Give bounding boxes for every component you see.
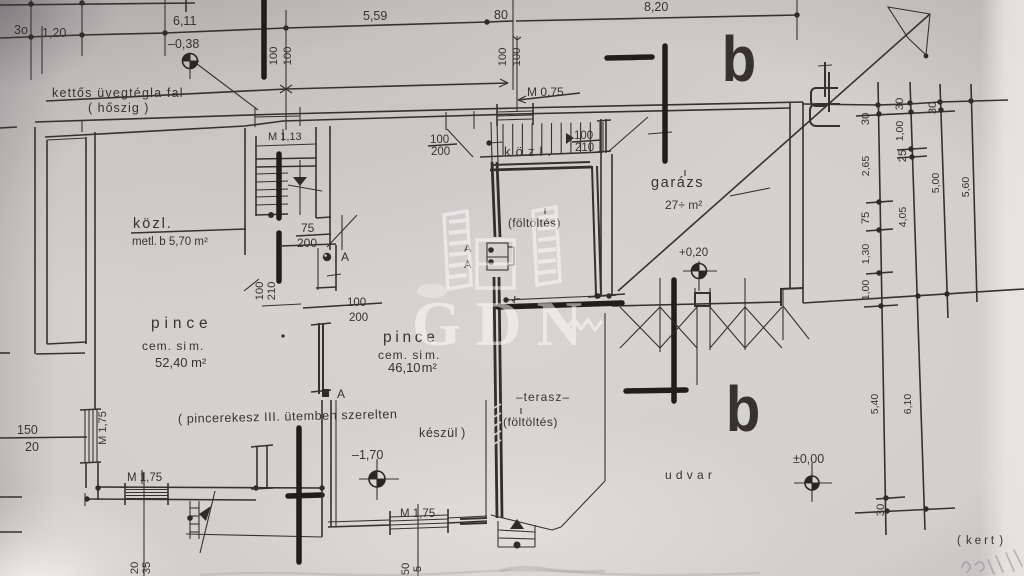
svg-text:b: b	[722, 23, 756, 95]
svg-text:75: 75	[860, 212, 872, 225]
svg-text:80: 80	[494, 8, 508, 22]
svg-text:5,40: 5,40	[869, 394, 881, 415]
svg-text:3o: 3o	[14, 23, 28, 37]
svg-text:200: 200	[431, 146, 450, 158]
svg-text:2,65: 2,65	[860, 156, 872, 177]
svg-text:A: A	[337, 387, 345, 401]
svg-text:200: 200	[349, 312, 368, 324]
svg-text:M 1,13: M 1,13	[268, 131, 302, 143]
svg-text:–0,38: –0,38	[168, 37, 199, 51]
svg-text:100: 100	[268, 47, 280, 66]
svg-text:k ö z l .: k ö z l .	[504, 144, 553, 159]
svg-text:1,00: 1,00	[894, 121, 906, 142]
svg-text:20: 20	[129, 562, 141, 575]
svg-text:M 1,75: M 1,75	[97, 411, 109, 445]
svg-text:46,10 m²: 46,10 m²	[388, 360, 437, 375]
svg-text:u d v a r: u d v a r	[665, 468, 713, 482]
svg-text:1,00: 1,00	[860, 280, 872, 301]
svg-text:( hőszig ): ( hőszig )	[88, 101, 149, 115]
svg-text:±0,00: ±0,00	[793, 452, 824, 466]
svg-text:b: b	[726, 373, 760, 445]
svg-text:50: 50	[400, 563, 412, 576]
svg-text:készül ): készül )	[419, 426, 466, 440]
svg-text:( k e r t ): ( k e r t )	[957, 535, 1004, 547]
svg-text:8,20: 8,20	[644, 0, 668, 14]
svg-text:150: 150	[17, 423, 38, 437]
svg-text:1,30: 1,30	[860, 244, 872, 265]
svg-text:5,00: 5,00	[930, 173, 942, 194]
svg-text:5,60: 5,60	[960, 177, 972, 198]
svg-text:garázs: garázs	[651, 175, 704, 191]
svg-text:100: 100	[497, 48, 509, 67]
svg-text:75: 75	[301, 221, 315, 235]
svg-text:25: 25	[897, 150, 909, 163]
svg-text:(föltöltés): (föltöltés)	[503, 415, 558, 429]
svg-text:4,05: 4,05	[897, 207, 909, 228]
svg-text:+0,20: +0,20	[679, 247, 708, 259]
svg-text:M 1,75: M 1,75	[127, 472, 162, 484]
svg-text:A: A	[341, 250, 349, 264]
svg-text:27÷ m²: 27÷ m²	[665, 198, 702, 212]
svg-text:–terasz–: –terasz–	[516, 390, 570, 404]
svg-text:30: 30	[875, 504, 887, 517]
svg-text:30: 30	[860, 113, 872, 126]
svg-text:100: 100	[282, 47, 294, 66]
svg-text:52,40 m²: 52,40 m²	[155, 355, 207, 370]
svg-text:közl.: közl.	[133, 216, 173, 232]
svg-text:200: 200	[297, 236, 317, 250]
svg-text:1,20: 1,20	[42, 26, 66, 40]
svg-text:35: 35	[141, 562, 153, 575]
svg-text:metl. b 5,70 m²: metl. b 5,70 m²	[132, 236, 208, 248]
svg-text:100: 100	[347, 297, 366, 309]
svg-text:20: 20	[25, 440, 39, 454]
svg-text:210: 210	[575, 142, 594, 154]
svg-text:–1,70: –1,70	[352, 448, 383, 462]
svg-text:cem. si m.: cem. si m.	[142, 339, 204, 353]
svg-text:6,10: 6,10	[902, 394, 914, 415]
svg-text:5,59: 5,59	[363, 9, 387, 23]
svg-text:100: 100	[254, 282, 266, 301]
svg-text:6,11: 6,11	[173, 14, 196, 28]
svg-text:p i n c e: p i n c e	[151, 315, 209, 332]
svg-text:30: 30	[894, 98, 906, 111]
svg-text:5: 5	[412, 566, 424, 572]
svg-text:210: 210	[266, 282, 278, 301]
svg-text:30: 30	[927, 102, 939, 115]
